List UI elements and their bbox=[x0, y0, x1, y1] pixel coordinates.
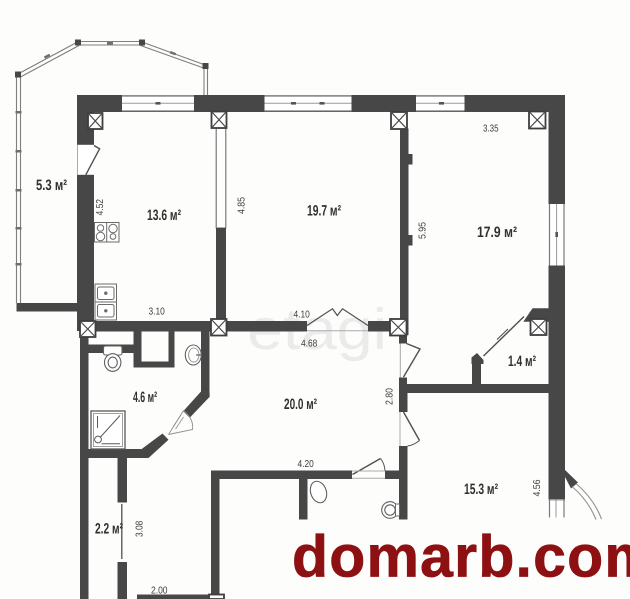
svg-text:2.2 м²: 2.2 м² bbox=[95, 521, 123, 538]
svg-text:3.10: 3.10 bbox=[149, 307, 166, 318]
svg-text:1.4 м²: 1.4 м² bbox=[508, 353, 536, 370]
svg-text:13.6 м²: 13.6 м² bbox=[147, 207, 181, 224]
svg-text:17.9 м²: 17.9 м² bbox=[477, 224, 517, 241]
svg-text:4.6 м²: 4.6 м² bbox=[133, 389, 157, 406]
svg-text:20.0 м²: 20.0 м² bbox=[284, 396, 317, 413]
svg-text:5.95: 5.95 bbox=[418, 222, 429, 239]
svg-text:4.56: 4.56 bbox=[532, 479, 543, 496]
svg-text:4.68: 4.68 bbox=[301, 339, 318, 350]
svg-text:domarb.com: domarb.com bbox=[292, 524, 630, 590]
svg-text:2.00: 2.00 bbox=[151, 586, 168, 597]
svg-text:19.7 м²: 19.7 м² bbox=[307, 203, 341, 220]
svg-text:4.85: 4.85 bbox=[237, 197, 248, 214]
svg-text:4.10: 4.10 bbox=[294, 310, 311, 321]
svg-text:5.3 м²: 5.3 м² bbox=[36, 177, 67, 194]
svg-text:3.35: 3.35 bbox=[483, 124, 499, 135]
svg-text:3.08: 3.08 bbox=[135, 520, 146, 537]
svg-text:15.3 м²: 15.3 м² bbox=[464, 481, 498, 498]
svg-text:4.20: 4.20 bbox=[298, 459, 315, 470]
svg-text:2.80: 2.80 bbox=[385, 388, 396, 405]
svg-text:4.52: 4.52 bbox=[95, 199, 106, 216]
